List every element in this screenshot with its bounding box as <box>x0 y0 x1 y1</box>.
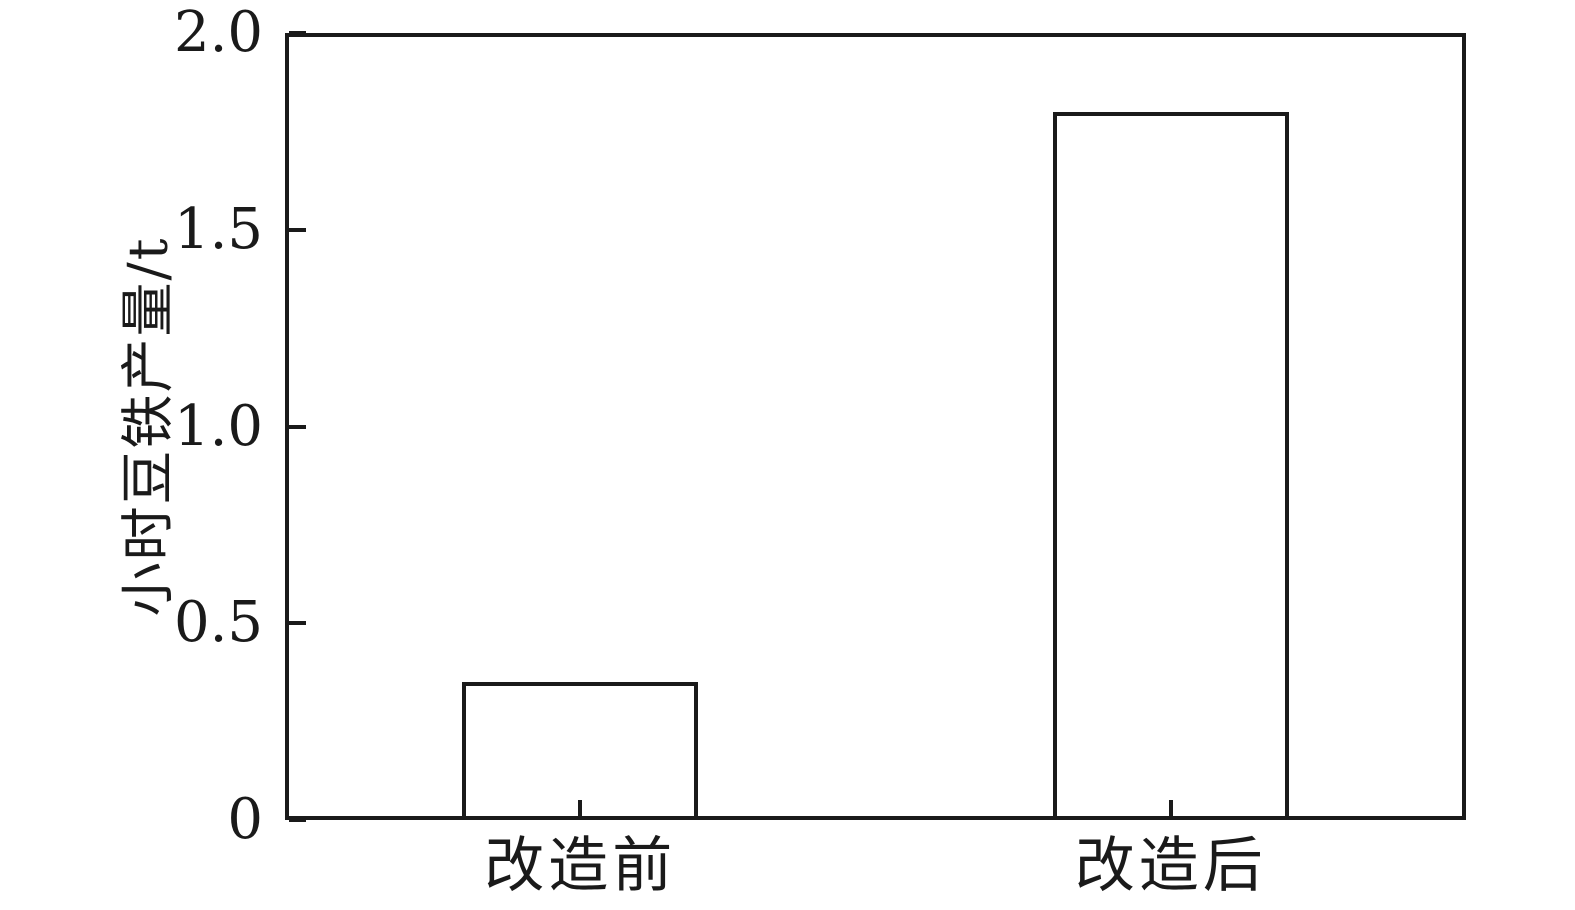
y-axis-tick-label: 1.5 <box>63 202 263 258</box>
y-axis-tick-label: 2.0 <box>63 5 263 61</box>
y-axis-tick-label: 0.5 <box>63 595 263 651</box>
y-axis-tick-mark <box>289 818 306 822</box>
x-axis-tick-label: 改造后 <box>1075 833 1267 899</box>
x-axis-tick-label: 改造前 <box>484 833 676 899</box>
plot-area <box>285 33 1466 820</box>
x-axis-tick-mark <box>578 800 582 816</box>
x-axis-tick-mark <box>1169 800 1173 816</box>
y-axis-tick-label: 0 <box>63 792 263 848</box>
y-axis-tick-mark <box>289 228 306 232</box>
bar-chart-figure: 小时豆铁产量/t 00.51.01.52.0改造前改造后 <box>0 0 1575 910</box>
y-axis-tick-mark <box>289 31 306 35</box>
y-axis-tick-label: 1.0 <box>63 399 263 455</box>
y-axis-tick-mark <box>289 425 306 429</box>
y-axis-tick-mark <box>289 621 306 625</box>
